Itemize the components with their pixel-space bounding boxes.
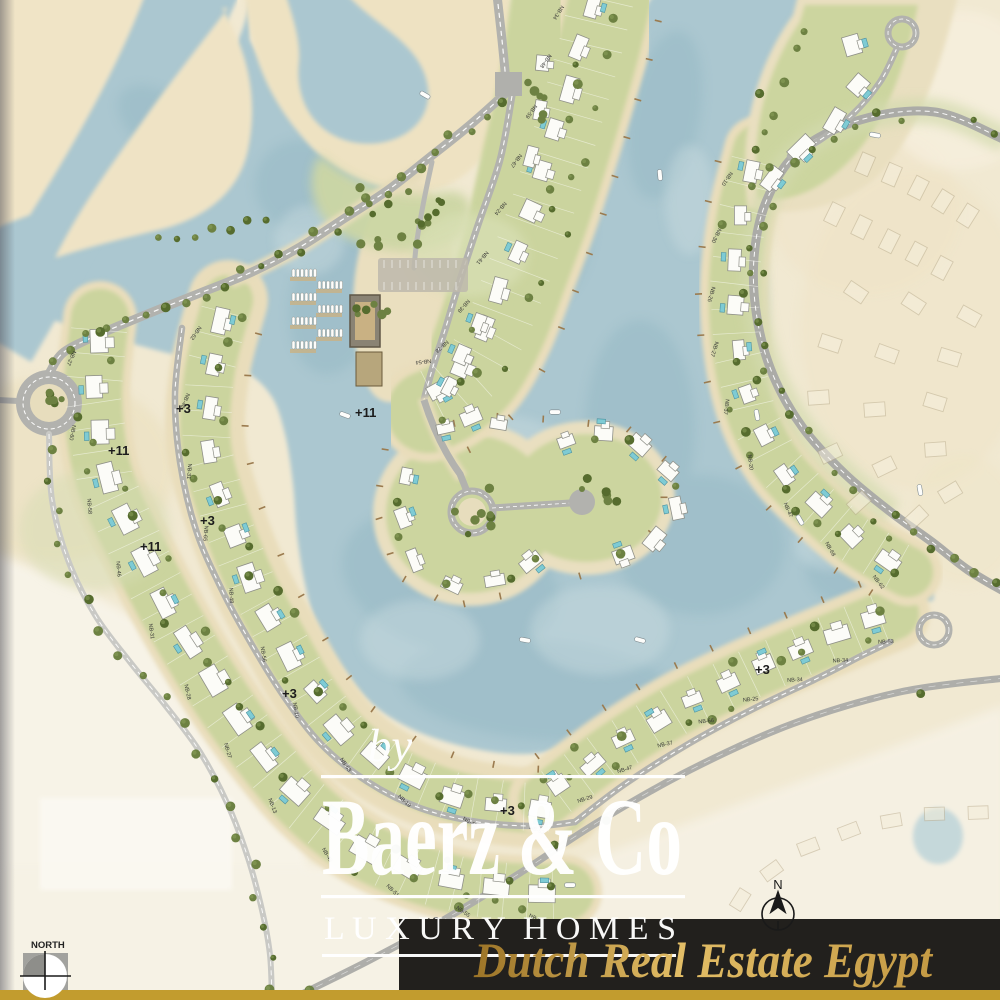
svg-text:+3: +3 [755,662,770,677]
svg-text:+11: +11 [108,443,129,458]
svg-text:N: N [773,877,782,892]
svg-text:NB-53: NB-53 [878,639,894,646]
svg-text:NORTH: NORTH [31,940,65,951]
svg-text:+11: +11 [140,539,161,554]
svg-text:NB-34: NB-34 [787,677,803,684]
svg-text:+11: +11 [355,405,376,420]
svg-text:+3: +3 [200,513,215,528]
svg-text:+3: +3 [282,686,297,701]
svg-text:+3: +3 [176,401,191,416]
svg-text:Dutch Real Estate Egypt: Dutch Real Estate Egypt [473,932,934,988]
svg-text:NB-48: NB-48 [227,588,234,604]
svg-text:by: by [368,720,413,772]
svg-text:Baerz & Co: Baerz & Co [322,776,682,898]
svg-text:NB-34: NB-34 [832,658,848,665]
